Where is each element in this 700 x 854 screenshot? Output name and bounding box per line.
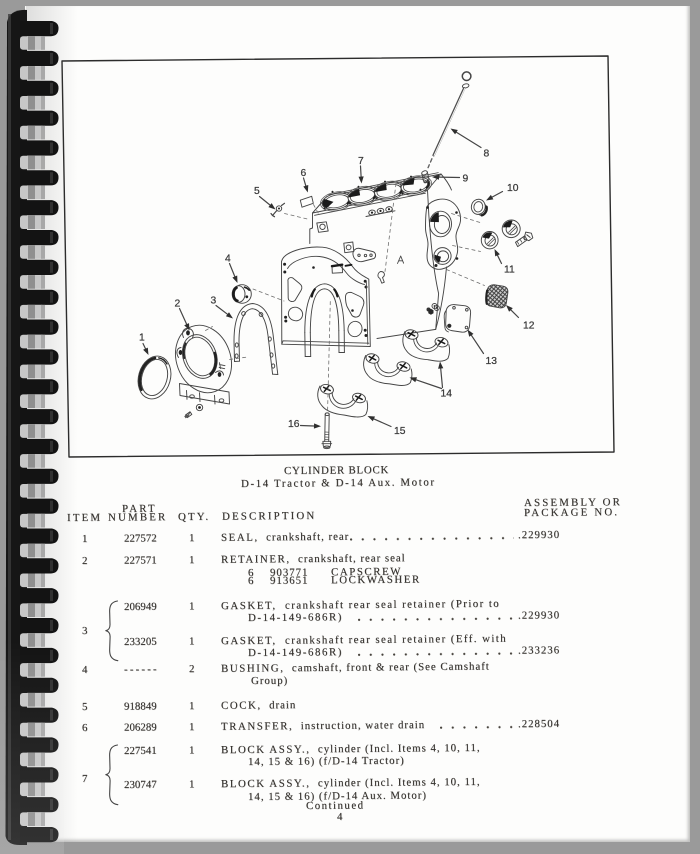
svg-text:2: 2 <box>175 299 181 310</box>
svg-text:14: 14 <box>441 389 453 400</box>
svg-text:8: 8 <box>484 149 490 160</box>
svg-text:5: 5 <box>254 186 260 197</box>
svg-text:7: 7 <box>358 156 364 167</box>
svg-text:3: 3 <box>211 296 217 307</box>
svg-text:11: 11 <box>504 265 515 276</box>
svg-text:10: 10 <box>507 183 519 194</box>
svg-text:13: 13 <box>486 356 498 367</box>
svg-text:1: 1 <box>139 333 145 344</box>
svg-text:15: 15 <box>394 426 406 437</box>
svg-text:16: 16 <box>288 419 300 430</box>
svg-text:12: 12 <box>523 321 535 332</box>
svg-text:4: 4 <box>225 254 231 265</box>
svg-text:9: 9 <box>463 174 469 185</box>
svg-text:6: 6 <box>301 168 307 179</box>
